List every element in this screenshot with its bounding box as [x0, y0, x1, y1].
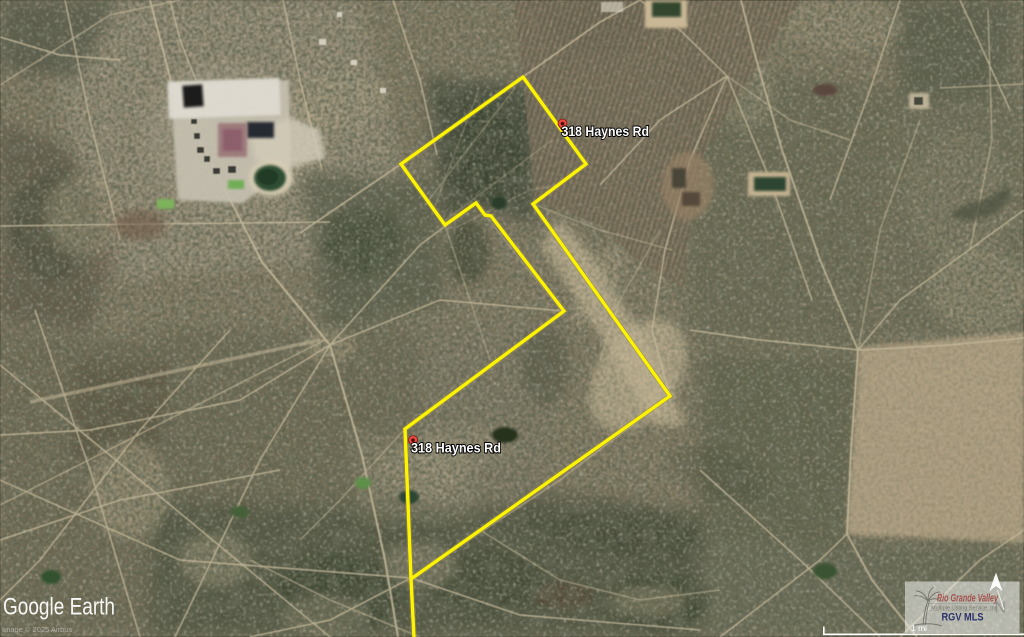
svg-text:Google Earth: Google Earth: [3, 594, 115, 621]
svg-text:Image © 2025 Airbus: Image © 2025 Airbus: [2, 625, 72, 634]
svg-text:1 mi: 1 mi: [911, 623, 927, 633]
svg-text:Rio Grande Valley: Rio Grande Valley: [937, 593, 999, 605]
svg-text:RGV MLS: RGV MLS: [942, 612, 984, 624]
svg-text:318 Haynes Rd: 318 Haynes Rd: [562, 123, 650, 139]
svg-text:Multiple Listing Service, Inc.: Multiple Listing Service, Inc.: [931, 605, 999, 611]
svg-text:N: N: [995, 600, 1007, 617]
svg-text:318 Haynes Rd: 318 Haynes Rd: [411, 439, 501, 455]
